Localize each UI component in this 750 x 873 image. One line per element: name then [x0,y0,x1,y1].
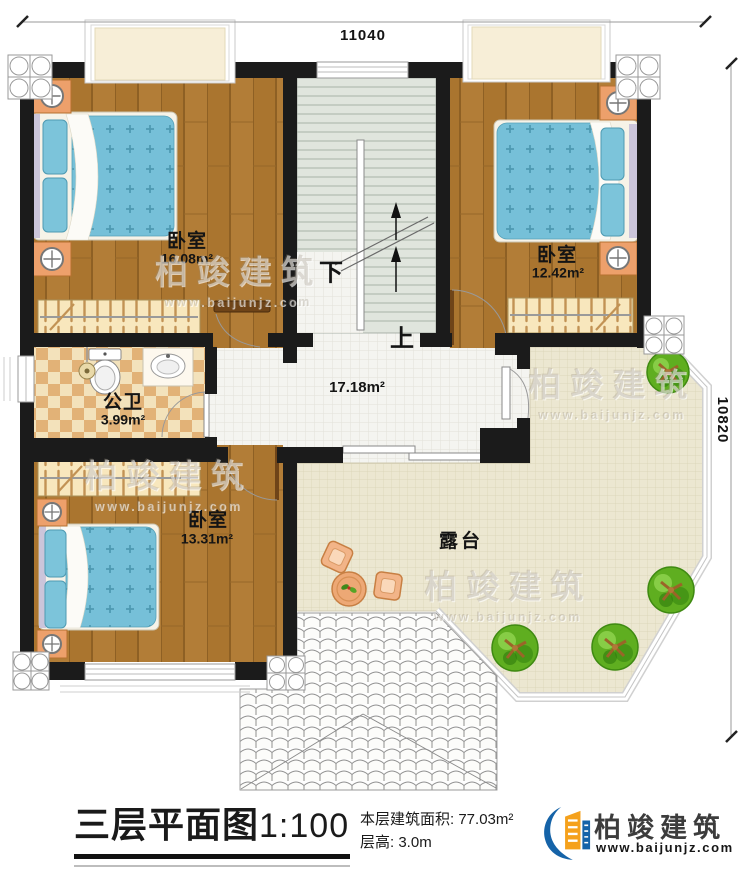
patio-table-icon [332,572,366,606]
title-block: 三层平面图1:100 [74,796,350,867]
room-area-bathroom: 3.99m² [101,413,145,428]
tree-icon [647,351,689,393]
plan-scale: 1:100 [259,807,349,845]
room-area-hall: 17.18m² [329,380,385,396]
window [4,356,34,402]
page-title: 三层平面图 [74,804,259,845]
room-area-bedroom-top-left: 16.08m² [161,252,213,267]
bed-icon [494,120,638,242]
title-underline [74,854,350,859]
floor-plan-page: 11040 10820 卧室 16.08m² 卧室 12.42m² 卧室 13.… [0,0,750,873]
wardrobe-icon [508,298,633,333]
sink-icon [143,348,193,386]
room-label-bedroom-top-right: 卧室 [537,246,577,266]
room-area-bedroom-bottom-left: 13.31m² [181,532,233,547]
patio-cushion-icon [373,571,402,600]
bed-icon [39,524,159,630]
room-label-bathroom: 公卫 [103,393,143,413]
bay-window [463,20,610,82]
wardrobe-icon [38,461,200,496]
floor-info: 本层建筑面积: 77.03m² 层高: 3.0m [360,808,513,855]
tree-icon [592,624,638,670]
floor-area-line: 本层建筑面积: 77.03m² [360,808,513,831]
wardrobe-icon [38,300,200,334]
floor-height-value: 3.0m [398,834,431,851]
room-area-bedroom-top-right: 12.42m² [532,266,584,281]
dimension-top-value: 11040 [340,28,386,44]
stair-rail [357,140,364,330]
floor-area-label: 本层建筑面积: [360,811,454,828]
room-label-terrace: 露台 [439,532,483,552]
floor-height-line: 层高: 3.0m [360,831,513,854]
window [60,664,250,692]
floor-plan-drawing [0,0,750,873]
stair-up-label: 上 [390,326,414,351]
stair-down-label: 下 [319,260,343,285]
bay-window [85,20,235,83]
brand-logo-icon [542,804,592,862]
dimension-right-value: 10820 [714,397,730,444]
window [317,62,408,78]
tree-icon [492,625,538,671]
tree-icon [648,567,694,613]
floor-area-value: 77.03m² [458,811,513,828]
room-label-bedroom-bottom-left: 卧室 [188,511,228,531]
brand-website: www.baijunjz.com [596,840,734,855]
room-label-bedroom-top-left: 卧室 [167,232,207,252]
bed-icon [33,112,177,240]
floor-height-label: 层高: [360,834,394,851]
title-underline-thin [74,865,350,867]
